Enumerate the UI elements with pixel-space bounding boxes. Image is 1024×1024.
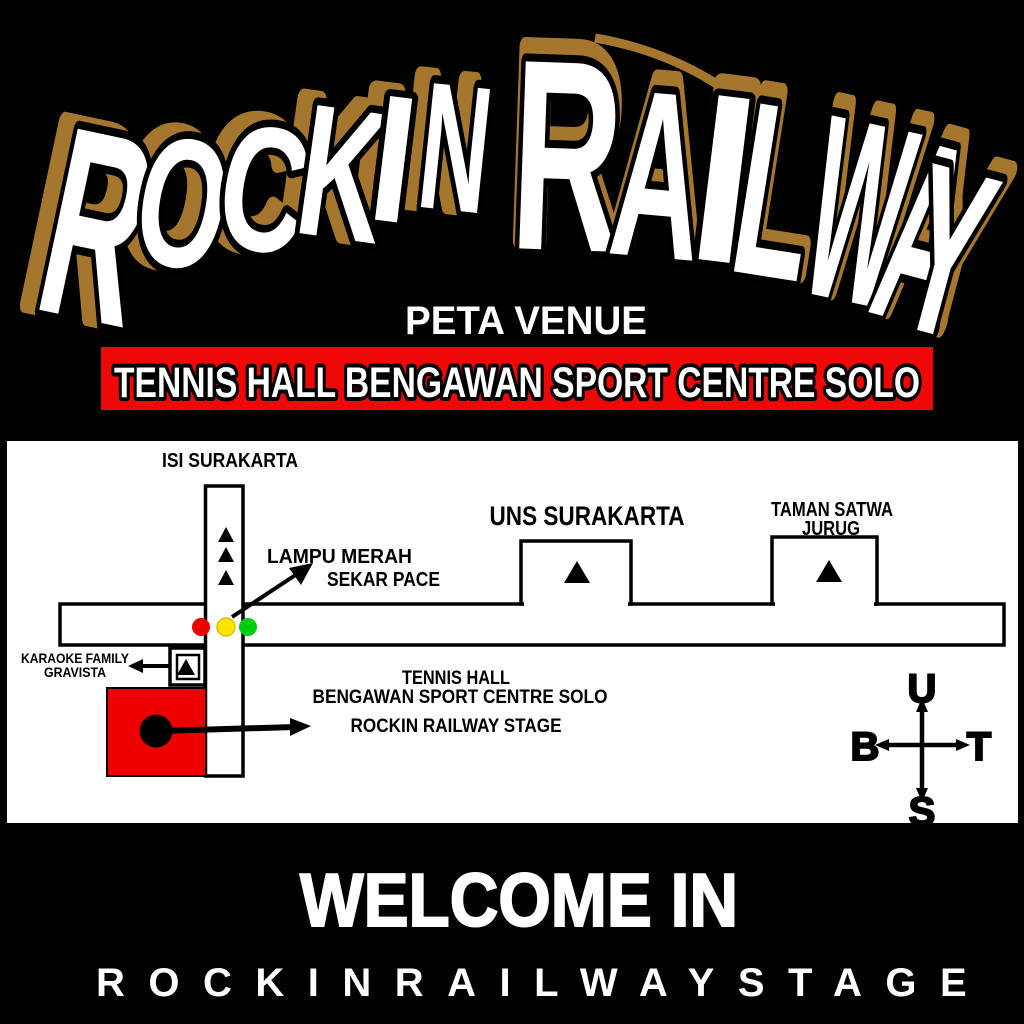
svg-text:JURUG: JURUG [802,518,860,540]
svg-text:PETA VENUE: PETA VENUE [405,299,647,343]
svg-text:SEKAR PACE: SEKAR PACE [327,569,440,591]
svg-text:TENNIS HALL BENGAWAN SPORT CEN: TENNIS HALL BENGAWAN SPORT CENTRE SOLO [114,359,920,407]
svg-text:B: B [851,725,880,769]
svg-text:UNS SURAKARTA: UNS SURAKARTA [490,501,685,531]
svg-text:ROCKINRAILWAYSTAGE: ROCKINRAILWAYSTAGE [96,961,990,1005]
svg-text:ROCKIN RAILWAY STAGE: ROCKIN RAILWAY STAGE [351,716,562,737]
svg-text:TENNIS HALL: TENNIS HALL [402,668,510,689]
svg-text:T: T [967,725,991,769]
svg-text:LAMPU MERAH: LAMPU MERAH [267,546,412,568]
svg-text:S: S [909,790,936,834]
svg-text:U: U [908,667,937,711]
svg-text:GRAVISTA: GRAVISTA [44,664,106,680]
svg-text:BENGAWAN SPORT CENTRE SOLO: BENGAWAN SPORT CENTRE SOLO [313,687,608,708]
svg-text:ISI SURAKARTA: ISI SURAKARTA [162,450,298,472]
svg-text:WELCOME IN: WELCOME IN [300,858,738,942]
